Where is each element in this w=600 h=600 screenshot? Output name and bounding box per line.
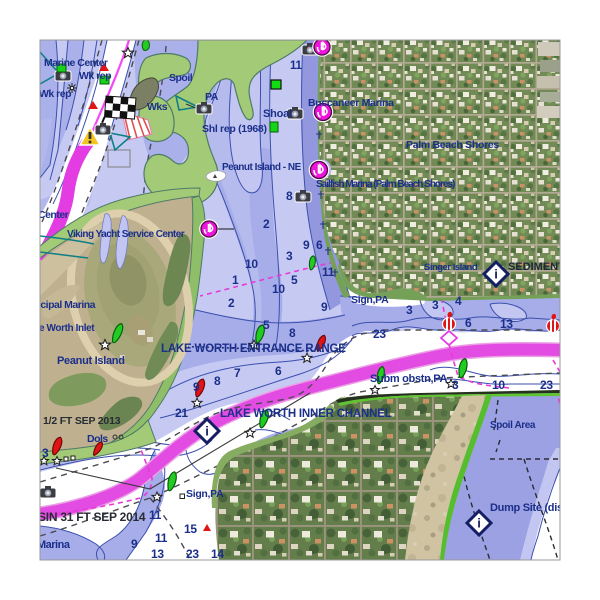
svg-text:Wk rep: Wk rep <box>79 70 111 82</box>
svg-text:Peanut Island: Peanut Island <box>57 355 125 367</box>
svg-text:Shoal: Shoal <box>263 108 292 120</box>
svg-text:2: 2 <box>263 217 270 231</box>
svg-text:3: 3 <box>406 303 413 317</box>
svg-text:Dols: Dols <box>87 433 108 445</box>
svg-text:11: 11 <box>149 508 162 522</box>
svg-text:Viking Yacht Service Center: Viking Yacht Service Center <box>67 229 185 240</box>
svg-text:Singer Island: Singer Island <box>424 262 478 273</box>
svg-text:i: i <box>494 267 498 282</box>
svg-text:i: i <box>477 516 481 531</box>
svg-text:14: 14 <box>211 547 224 561</box>
svg-text:11: 11 <box>322 265 335 279</box>
svg-text:Buccaneer Marina: Buccaneer Marina <box>308 97 394 109</box>
svg-text:7: 7 <box>234 366 241 380</box>
svg-text:9: 9 <box>131 537 138 551</box>
svg-text:15: 15 <box>184 522 197 536</box>
svg-text:13: 13 <box>151 547 164 561</box>
svg-text:9: 9 <box>193 380 200 394</box>
svg-text:6: 6 <box>275 364 282 378</box>
svg-text:10: 10 <box>272 282 285 296</box>
svg-text:3: 3 <box>452 378 459 392</box>
svg-text:3: 3 <box>42 446 49 460</box>
svg-text:Marina: Marina <box>37 539 71 551</box>
svg-text:Dump Site (dis: Dump Site (dis <box>490 502 563 514</box>
svg-text:11: 11 <box>155 531 168 545</box>
svg-text:1: 1 <box>232 273 239 287</box>
svg-text:Sailfish Marina (Palm Beach Sh: Sailfish Marina (Palm Beach Shores) <box>316 179 455 190</box>
svg-text:5: 5 <box>291 273 298 287</box>
svg-text:3: 3 <box>286 249 293 263</box>
svg-text:Palm Beach Shores: Palm Beach Shores <box>406 139 499 151</box>
svg-text:SIN 31 FT SEP 2014: SIN 31 FT SEP 2014 <box>38 510 146 524</box>
svg-text:9: 9 <box>303 238 310 252</box>
svg-text:6: 6 <box>465 316 472 330</box>
svg-text:i: i <box>205 424 209 439</box>
svg-text:1/2 FT SEP 2013: 1/2 FT SEP 2013 <box>43 415 121 427</box>
svg-text:Subm obstn,PA: Subm obstn,PA <box>370 373 448 385</box>
svg-text:3: 3 <box>432 298 439 312</box>
svg-text:Spoil Area: Spoil Area <box>490 420 536 431</box>
svg-text:4: 4 <box>455 294 462 308</box>
svg-text:8: 8 <box>286 189 293 203</box>
svg-text:13: 13 <box>500 317 513 331</box>
svg-text:Wks: Wks <box>147 101 168 113</box>
svg-text:nicipal Marina: nicipal Marina <box>32 299 96 311</box>
svg-text:23: 23 <box>186 547 199 561</box>
svg-text:10: 10 <box>492 378 505 392</box>
svg-text:10: 10 <box>245 257 258 271</box>
svg-text:23: 23 <box>540 378 553 392</box>
svg-text:Sign,PA: Sign,PA <box>351 294 389 306</box>
svg-text:5: 5 <box>263 318 270 332</box>
svg-text:Sign,PA: Sign,PA <box>186 488 224 500</box>
svg-text:8: 8 <box>214 374 221 388</box>
svg-text:e Worth Inlet: e Worth Inlet <box>39 323 95 334</box>
svg-text:9: 9 <box>321 300 328 314</box>
svg-text:Marine Center: Marine Center <box>44 57 108 69</box>
svg-text:Wk rep: Wk rep <box>39 88 71 100</box>
svg-text:Shl rep (1968): Shl rep (1968) <box>202 123 267 135</box>
svg-text:PA: PA <box>205 91 219 103</box>
svg-text:Spoil: Spoil <box>169 72 193 84</box>
svg-text:21: 21 <box>175 406 188 420</box>
svg-text:2: 2 <box>228 296 235 310</box>
svg-text:23: 23 <box>373 327 386 341</box>
svg-text:8: 8 <box>289 326 296 340</box>
svg-text:Center: Center <box>38 209 69 221</box>
svg-text:Peanut Island - NE: Peanut Island - NE <box>222 162 302 173</box>
svg-text:SEDIMENT: SEDIMENT <box>508 261 565 273</box>
svg-text:LAKE WORTH INNER CHANNEL: LAKE WORTH INNER CHANNEL <box>220 408 392 420</box>
svg-text:11: 11 <box>290 60 302 72</box>
svg-text:LAKE WORTH ENTRANCE RANGE: LAKE WORTH ENTRANCE RANGE <box>161 343 346 355</box>
svg-text:6: 6 <box>316 238 323 252</box>
